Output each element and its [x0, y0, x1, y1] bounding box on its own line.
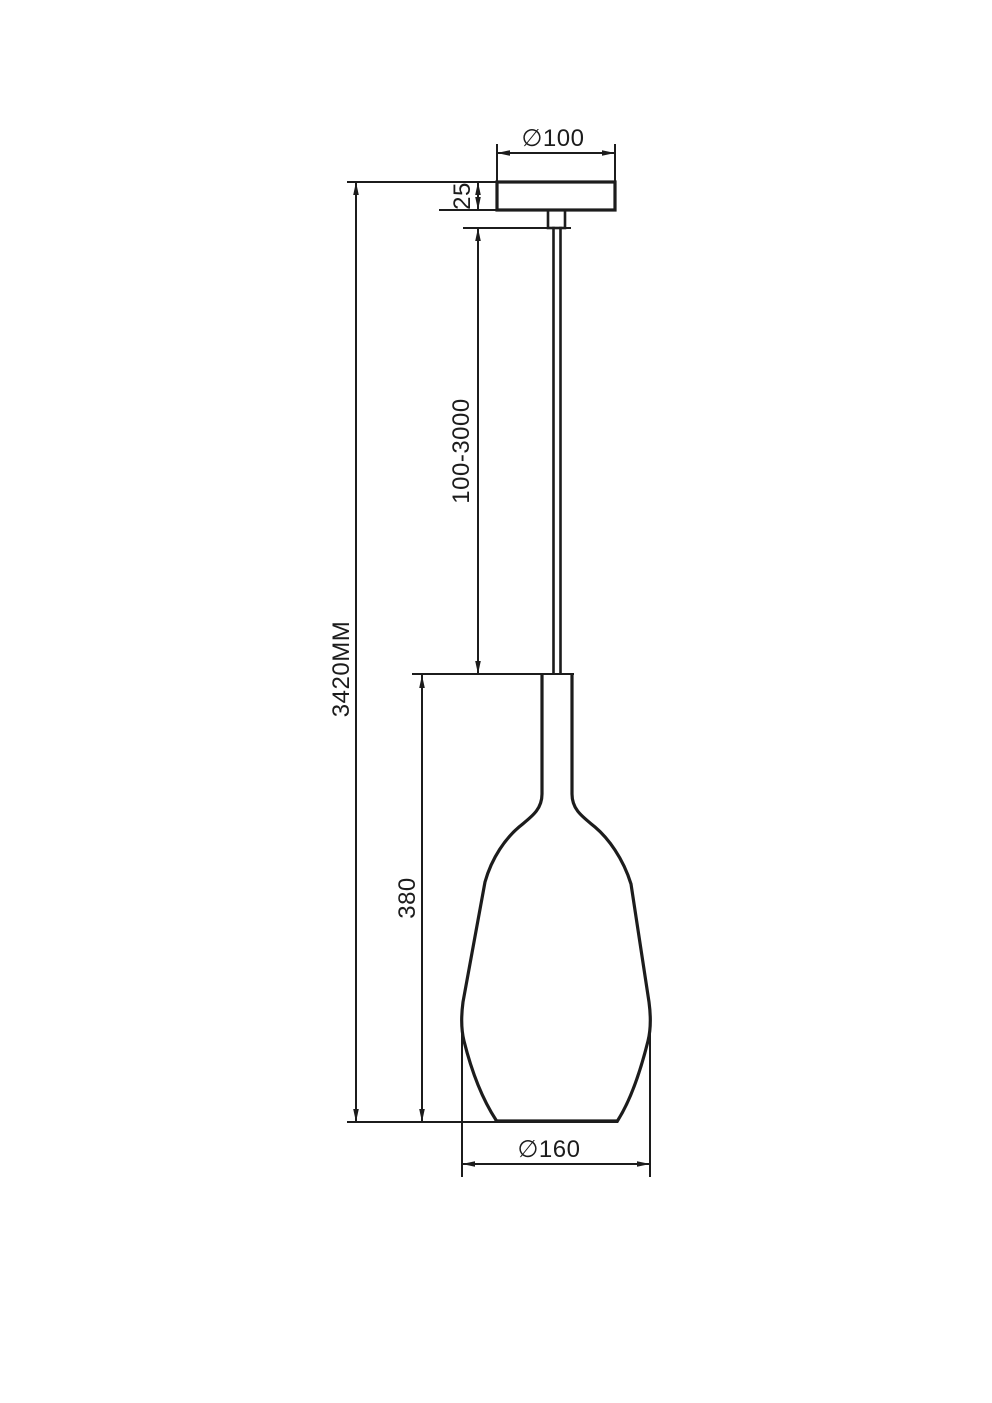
dimension-label-canopy-diameter: ∅100	[522, 127, 585, 151]
dimension-label-shade-diameter: ∅160	[518, 1138, 581, 1162]
dimension-label-suspension-length: 100-3000	[450, 398, 474, 503]
suspension-cable-lines	[554, 228, 561, 673]
lamp-line-art	[0, 0, 992, 1403]
lamp-outline-group	[462, 182, 651, 1121]
dimension-label-canopy-height: 25	[451, 182, 475, 210]
dimension-lines-group	[356, 153, 650, 1164]
canopy-outline	[497, 182, 615, 210]
shade-left-profile	[462, 676, 542, 1120]
drawing-canvas: ∅100 25 100-3000 3420MM 380 ∅160	[0, 0, 992, 1403]
extension-lines-group	[348, 145, 650, 1176]
dimension-label-overall-height: 3420MM	[330, 621, 354, 717]
cable-connector-outline	[548, 210, 565, 228]
dimension-label-shade-height: 380	[396, 877, 420, 919]
shade-right-profile	[572, 676, 650, 1120]
